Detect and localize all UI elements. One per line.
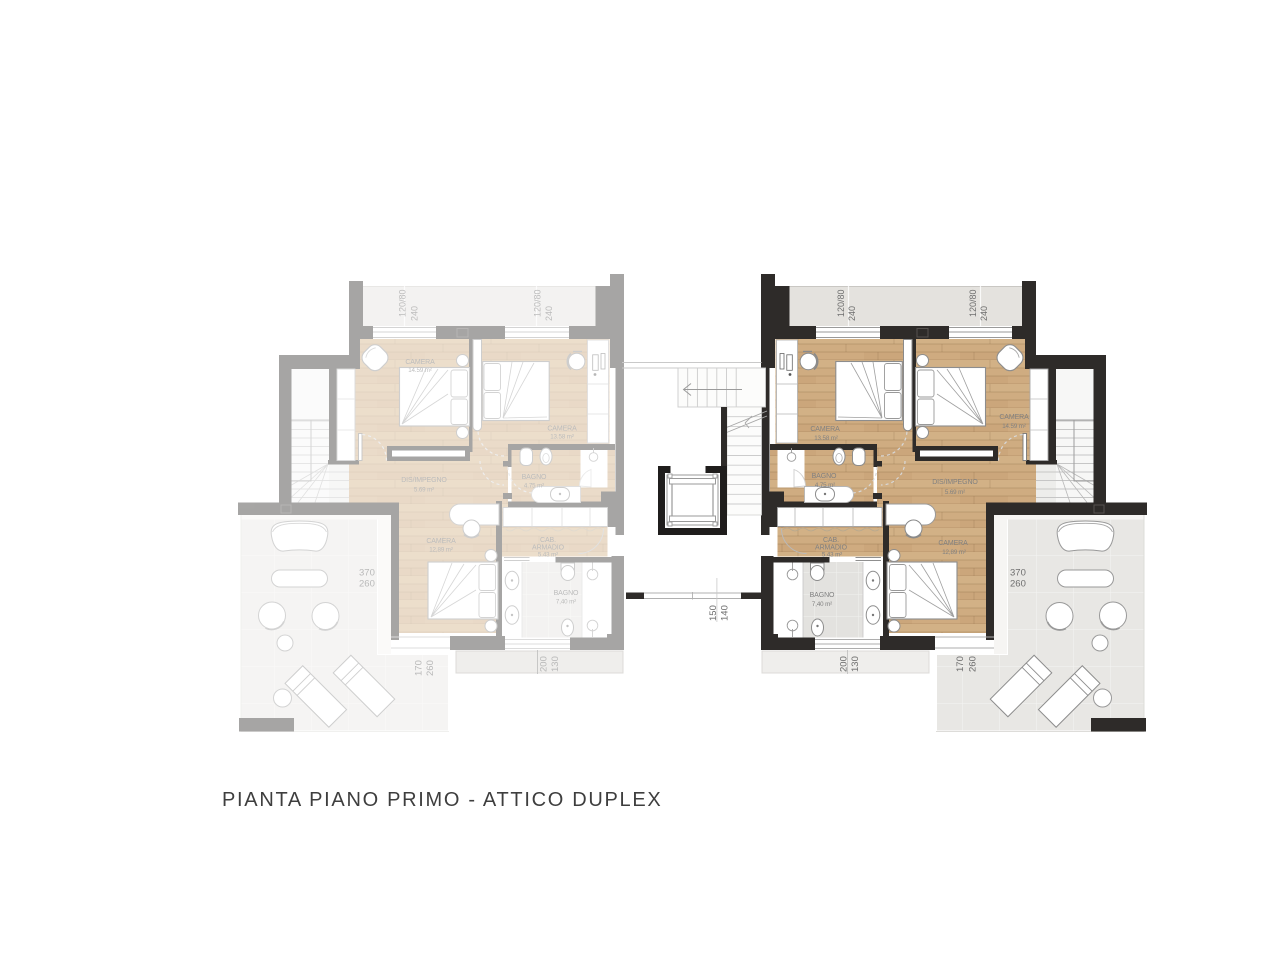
svg-text:13.58 m²: 13.58 m² [814,435,838,442]
svg-text:240: 240 [979,306,989,321]
svg-text:240: 240 [847,306,857,321]
svg-text:4.75 m²: 4.75 m² [524,483,544,490]
svg-text:240: 240 [410,306,420,321]
svg-text:12,89 m²: 12,89 m² [429,547,453,554]
svg-text:CAMERA: CAMERA [405,359,435,366]
svg-text:CAB.: CAB. [540,537,556,544]
svg-text:BAGNO: BAGNO [554,590,579,597]
svg-text:ARMADIO: ARMADIO [532,545,565,552]
svg-text:5.69 m²: 5.69 m² [414,487,434,494]
svg-text:240: 240 [544,306,554,321]
svg-text:14.59 m²: 14.59 m² [1002,423,1026,430]
svg-text:260: 260 [425,660,436,676]
svg-text:CAMERA: CAMERA [938,540,968,547]
svg-text:BAGNO: BAGNO [812,473,837,480]
svg-text:370: 370 [359,568,375,579]
svg-text:5.69 m²: 5.69 m² [945,489,965,496]
svg-text:5.43 m²: 5.43 m² [822,552,842,559]
svg-text:120/80: 120/80 [533,289,543,317]
svg-text:DIS/IMPEGNO: DIS/IMPEGNO [932,479,978,486]
svg-text:CAMERA: CAMERA [547,426,577,433]
svg-text:CAMERA: CAMERA [810,426,840,433]
svg-text:120/80: 120/80 [836,289,846,317]
svg-text:120/80: 120/80 [398,289,408,317]
svg-text:4.75 m²: 4.75 m² [815,482,835,489]
svg-text:140: 140 [720,605,731,621]
svg-text:14.59 m²: 14.59 m² [408,367,432,374]
svg-text:260: 260 [1010,579,1026,590]
svg-text:130: 130 [550,656,561,672]
svg-text:12,89 m²: 12,89 m² [942,549,966,556]
svg-text:170: 170 [955,656,966,672]
svg-text:CAB.: CAB. [823,537,839,544]
svg-text:BAGNO: BAGNO [522,474,547,481]
svg-text:PIANTA PIANO PRIMO - ATTICO DU: PIANTA PIANO PRIMO - ATTICO DUPLEX [222,789,662,811]
svg-text:130: 130 [850,656,861,672]
svg-text:ARMADIO: ARMADIO [815,545,848,552]
svg-text:7,40 m²: 7,40 m² [556,599,576,606]
svg-text:5.43 m²: 5.43 m² [538,552,558,559]
svg-text:260: 260 [359,579,375,590]
svg-text:7,40 m²: 7,40 m² [812,601,832,608]
svg-text:120/80: 120/80 [968,289,978,317]
svg-text:CAMERA: CAMERA [999,414,1029,421]
svg-text:200: 200 [539,656,550,672]
svg-text:BAGNO: BAGNO [810,592,835,599]
svg-text:170: 170 [414,660,425,676]
svg-text:260: 260 [968,656,979,672]
svg-text:370: 370 [1010,568,1026,579]
svg-text:150: 150 [708,605,719,621]
svg-text:13.58 m²: 13.58 m² [550,434,574,441]
svg-text:DIS/IMPEGNO: DIS/IMPEGNO [401,477,447,484]
svg-text:200: 200 [839,656,850,672]
svg-text:CAMERA: CAMERA [426,538,456,545]
